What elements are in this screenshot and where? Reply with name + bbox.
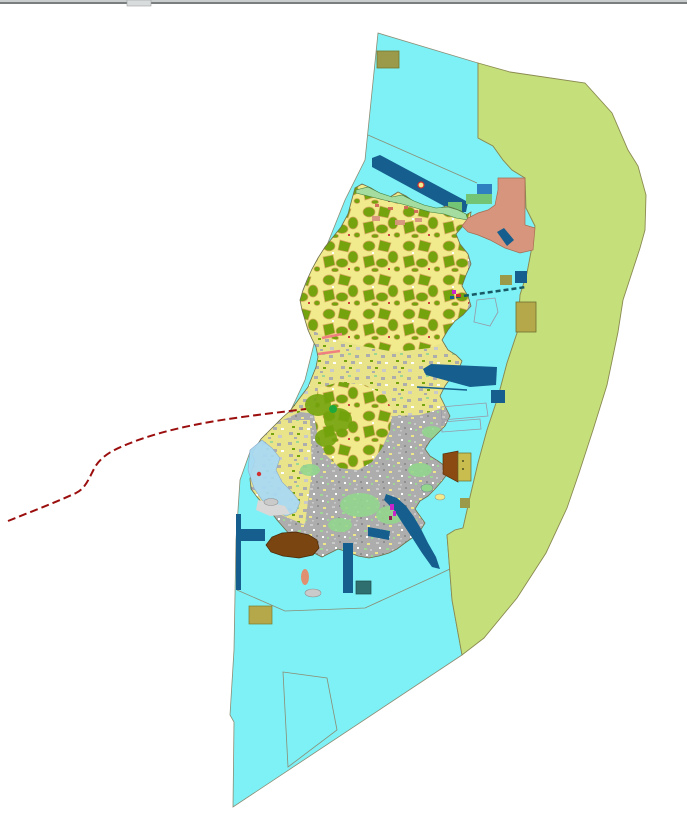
gray-islet [305,589,321,597]
south-slate-block [356,581,371,594]
midright-blue-block [491,390,505,403]
gray-islet-2 [264,499,278,506]
se-islet-green [421,484,433,492]
top-bar [0,0,687,4]
se-islet-yellow [435,494,445,500]
southwest-khaki-block [249,606,272,624]
top-bar-handle[interactable] [127,0,151,6]
north-khaki-block [377,51,399,68]
east-house-khaki [458,453,471,481]
salmon-islet [301,569,309,585]
east-khaki-small [460,498,470,508]
south-pier-strip [343,543,353,593]
northeast-green-block [466,194,492,204]
west-pier-horizontal [241,529,265,541]
east-blue-block [515,271,527,283]
map-canvas[interactable] [0,0,687,821]
vivid-green-dot [329,405,337,413]
west-pier-vertical [236,514,241,590]
east-khaki-block-large [516,302,536,332]
map-svg[interactable] [0,0,687,821]
east-khaki-block [500,275,512,285]
coast-outlined-marker [418,182,424,188]
red-marker-dot [257,472,261,476]
